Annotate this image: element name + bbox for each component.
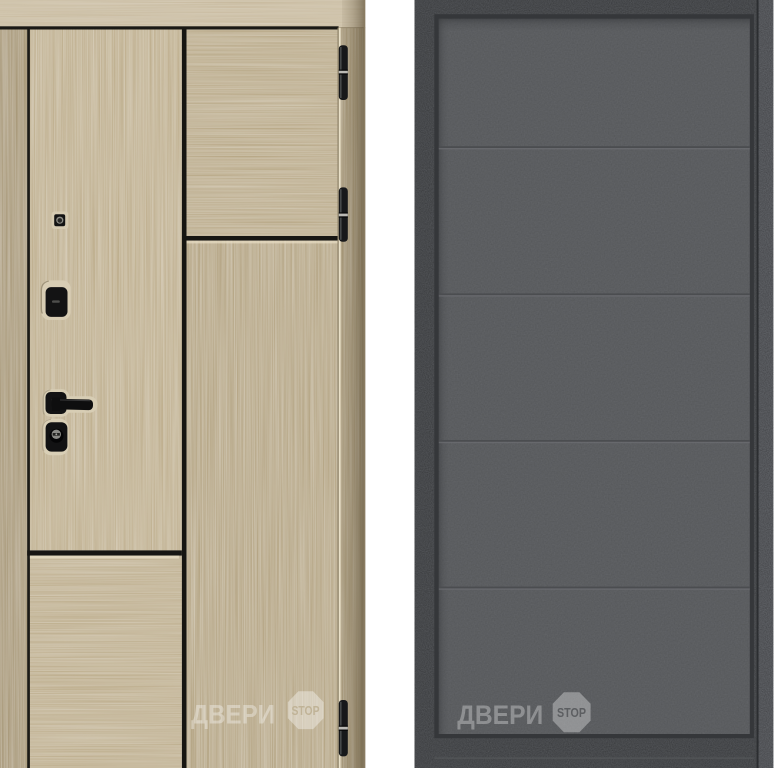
- svg-text:STOP: STOP: [557, 705, 586, 720]
- svg-text:ДВЕРИ: ДВЕРИ: [457, 700, 543, 730]
- svg-text:STOP: STOP: [292, 704, 320, 718]
- svg-text:ДВЕРИ: ДВЕРИ: [191, 700, 275, 730]
